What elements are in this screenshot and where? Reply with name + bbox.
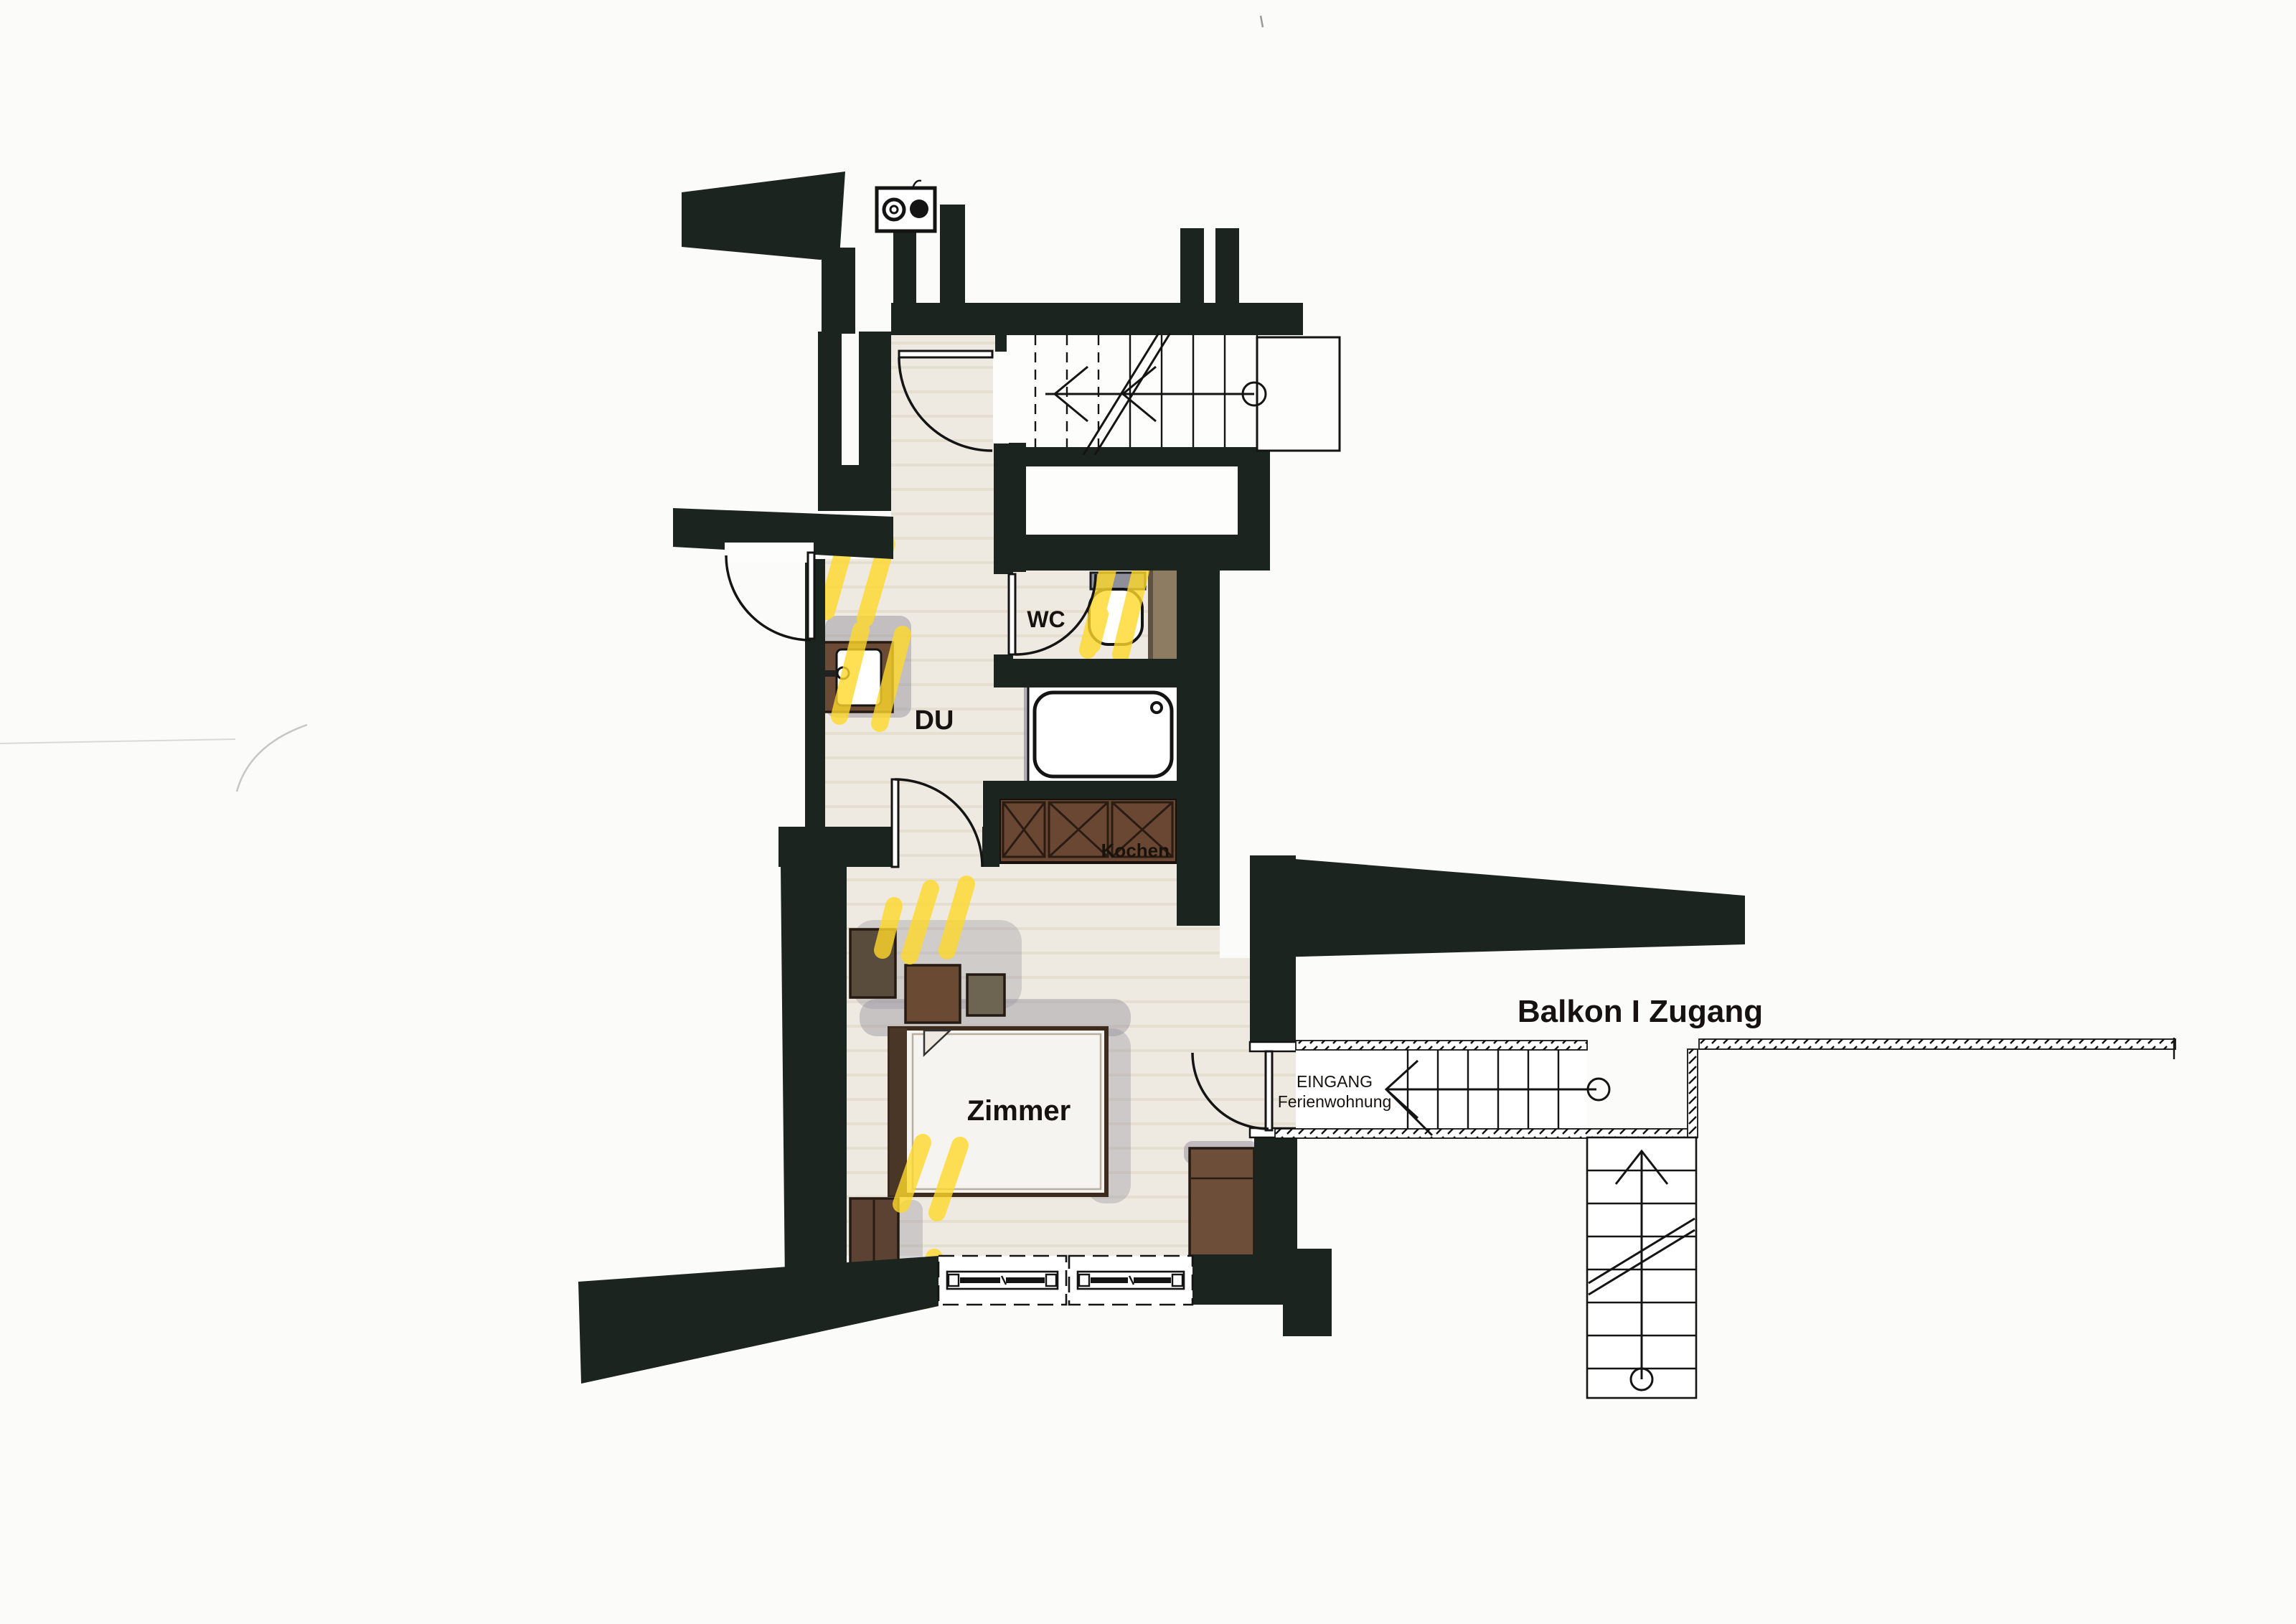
floor-plan-canvas: DU WC Zimmer Kochen Balkon I Zugang EING… bbox=[0, 0, 2296, 1624]
door-left-room bbox=[725, 543, 814, 640]
wall-east-wing bbox=[1250, 855, 1745, 958]
stair-landing bbox=[1257, 337, 1340, 451]
windows bbox=[938, 1256, 1192, 1305]
nightstand-3 bbox=[967, 975, 1004, 1015]
wall-wc-south-west bbox=[994, 653, 1013, 687]
drain-icon bbox=[1152, 703, 1162, 713]
wall-w-junction bbox=[822, 248, 855, 334]
label-du: DU bbox=[915, 705, 954, 736]
wall-bottom-left-slab bbox=[578, 1256, 938, 1384]
wall-wc-north bbox=[994, 535, 1270, 571]
wall-zimmer-west bbox=[781, 865, 847, 1285]
wall-east-column bbox=[1177, 571, 1220, 926]
wall-du-south bbox=[778, 827, 895, 867]
wall-door-east-stub bbox=[982, 827, 999, 867]
wall-kitchen-north bbox=[983, 781, 1177, 799]
label-ferienwohnung: Ferienwohnung bbox=[1278, 1092, 1392, 1111]
window-left bbox=[938, 1256, 1066, 1305]
wall-top-left-slab bbox=[682, 172, 845, 260]
label-wc: WC bbox=[1027, 606, 1065, 632]
shower-tray bbox=[1028, 686, 1178, 782]
flue-strip bbox=[893, 231, 916, 303]
wall-w-outer bbox=[818, 332, 842, 511]
balcony-rail-east bbox=[1699, 1039, 2175, 1049]
balcony-access bbox=[1275, 1038, 2175, 1398]
wall-stub-1 bbox=[1180, 228, 1204, 304]
stair-hall-floor bbox=[1007, 334, 1257, 447]
wall-w-closer bbox=[842, 465, 859, 511]
label-balkon-zugang: Balkon I Zugang bbox=[1518, 994, 1763, 1029]
room-below-stairs-floor bbox=[1026, 466, 1238, 535]
hall-cabinet bbox=[1190, 1148, 1254, 1269]
floor-plan-page: DU WC Zimmer Kochen Balkon I Zugang EING… bbox=[0, 0, 2296, 1624]
wall-wc-south bbox=[1013, 659, 1177, 687]
nightstand-2 bbox=[905, 965, 960, 1023]
wall-w-inner bbox=[859, 332, 891, 511]
label-kochen: Kochen bbox=[1101, 840, 1170, 861]
label-zimmer: Zimmer bbox=[967, 1095, 1071, 1127]
wall-door-stub bbox=[995, 334, 1007, 353]
wall-stairhall-top bbox=[891, 303, 1303, 335]
wall-room-east bbox=[1238, 466, 1270, 538]
chimney-icon bbox=[877, 181, 935, 231]
balcony-rail-return bbox=[1688, 1049, 1698, 1137]
label-eingang: EINGANG bbox=[1297, 1072, 1373, 1091]
wall-entry-south bbox=[1254, 1137, 1297, 1305]
window-right bbox=[1069, 1256, 1192, 1305]
faucet-icon bbox=[825, 670, 837, 677]
wall-stub-2 bbox=[1215, 228, 1239, 304]
wc-tile-strip bbox=[1148, 571, 1177, 659]
wardrobe bbox=[850, 1198, 898, 1264]
lower-stairs bbox=[1587, 1137, 1696, 1398]
walkway-rail-north bbox=[1296, 1041, 1587, 1050]
wall-stairhall-bottom bbox=[994, 447, 1270, 466]
